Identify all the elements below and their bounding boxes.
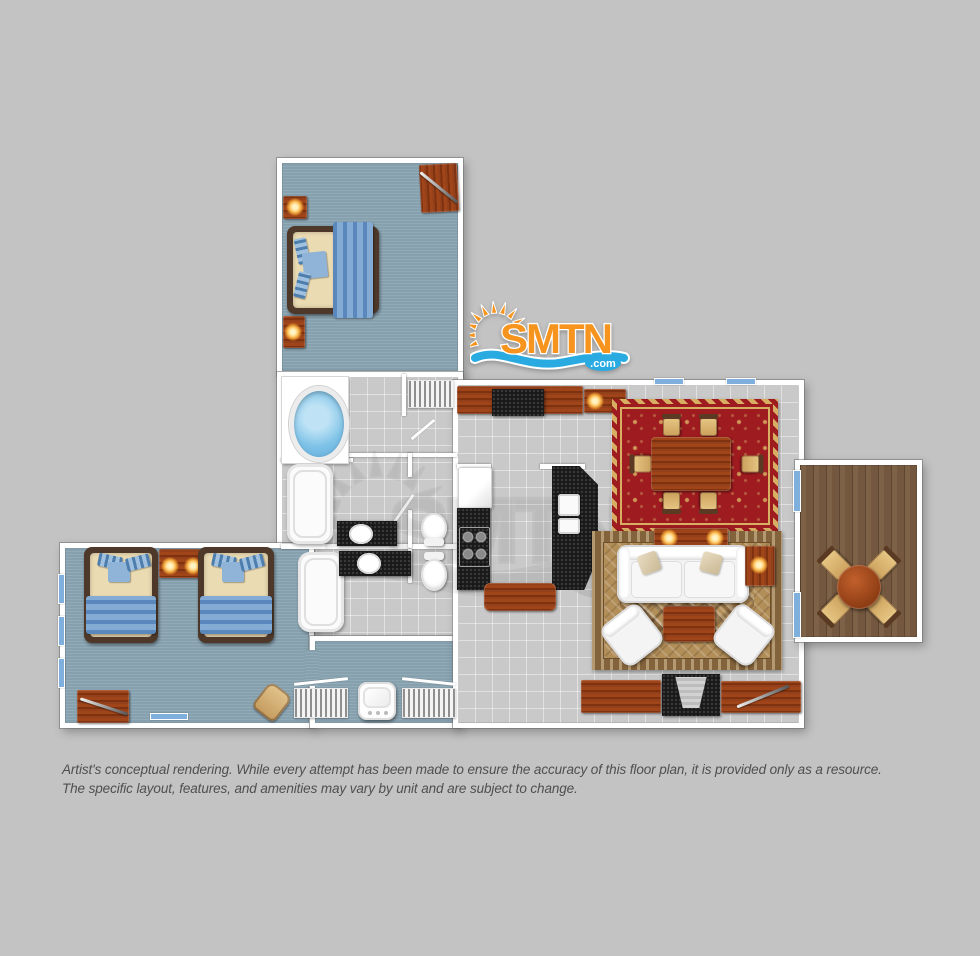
dining-window-1 (654, 378, 684, 385)
dining-chair-3 (663, 492, 680, 510)
dining-table (651, 437, 731, 491)
bathtub-1-basin (293, 470, 327, 538)
media-console-item (736, 685, 789, 709)
master-bed-blanket (333, 222, 373, 318)
washer-door (363, 687, 391, 708)
wall-closet-left (402, 374, 406, 416)
dining-chair-5 (634, 456, 652, 473)
coffee-table (663, 606, 715, 642)
sofa-arm-left (619, 547, 630, 599)
bathtub-1 (287, 464, 333, 544)
disclaimer: Artist's conceptual rendering. While eve… (62, 760, 922, 798)
guest-window-1 (58, 574, 65, 604)
master-closet-hangers (408, 380, 454, 408)
kitchen-tv (492, 389, 544, 416)
guest-dresser (77, 690, 129, 723)
toilet-1-tank (424, 538, 444, 546)
dining-chair-1 (663, 418, 680, 436)
entry-console-lamp (586, 392, 604, 410)
master-lamp-1 (286, 198, 304, 216)
guest-window-3 (58, 658, 65, 688)
master-dresser (419, 163, 459, 213)
wall-toilet-vert-upper (408, 453, 412, 477)
master-lamp-2 (284, 323, 302, 341)
bathtub-2 (298, 552, 344, 632)
deck-table (837, 565, 881, 609)
vanity-2-sink (357, 553, 381, 574)
disclaimer-line-2: The specific layout, features, and ameni… (62, 779, 922, 798)
logo-tld-text: .com (590, 358, 616, 370)
logo-brand-text: SMTN (500, 315, 611, 362)
fireplace-hearth (668, 677, 714, 708)
wall-toilet-vert-lower (408, 510, 412, 548)
washer-controls (368, 711, 372, 715)
island-sink-basin-1 (558, 494, 580, 516)
wall-toilet-room-top (345, 453, 457, 457)
bathtub-2-basin (304, 558, 338, 626)
guest-dresser-item (80, 697, 128, 715)
toilet-2-bowl (421, 559, 447, 591)
media-console-left (581, 680, 661, 713)
jacuzzi-tub (289, 386, 349, 462)
guest-window-bottom (150, 713, 188, 720)
dining-chair-2 (700, 418, 717, 436)
hall-closet-2 (402, 688, 456, 718)
refrigerator (458, 467, 492, 509)
stove (459, 527, 490, 567)
guest-bed-2-blanket (200, 596, 272, 634)
kitchen-bench (484, 583, 556, 611)
fireplace (662, 674, 720, 716)
guest-bed-1-blanket (86, 596, 156, 634)
living-end-table-lamp (750, 556, 768, 574)
page: { "page": { "background_color": "#C3C3C3… (0, 0, 980, 956)
room-deck (795, 460, 922, 642)
dining-window-2 (726, 378, 756, 385)
media-console-right (721, 681, 801, 713)
hall-closet-1 (294, 688, 348, 718)
vanity-1-sink (349, 524, 373, 544)
sofa (617, 545, 749, 603)
master-dresser-item (419, 171, 458, 204)
island-sink-basin-2 (558, 518, 580, 534)
deck-window (793, 470, 801, 512)
dining-chair-4 (700, 492, 717, 510)
washer-dryer (358, 682, 396, 720)
deck-slider-door (793, 592, 801, 638)
smtn-logo: SMTN .com (470, 298, 630, 376)
guest-window-2 (58, 616, 65, 646)
disclaimer-line-1: Artist's conceptual rendering. While eve… (62, 760, 922, 779)
guest-lamp-1 (161, 557, 179, 575)
floor-plan: SMTN .com Artist's conceptual rendering.… (0, 0, 980, 956)
dining-chair-6 (742, 456, 760, 473)
